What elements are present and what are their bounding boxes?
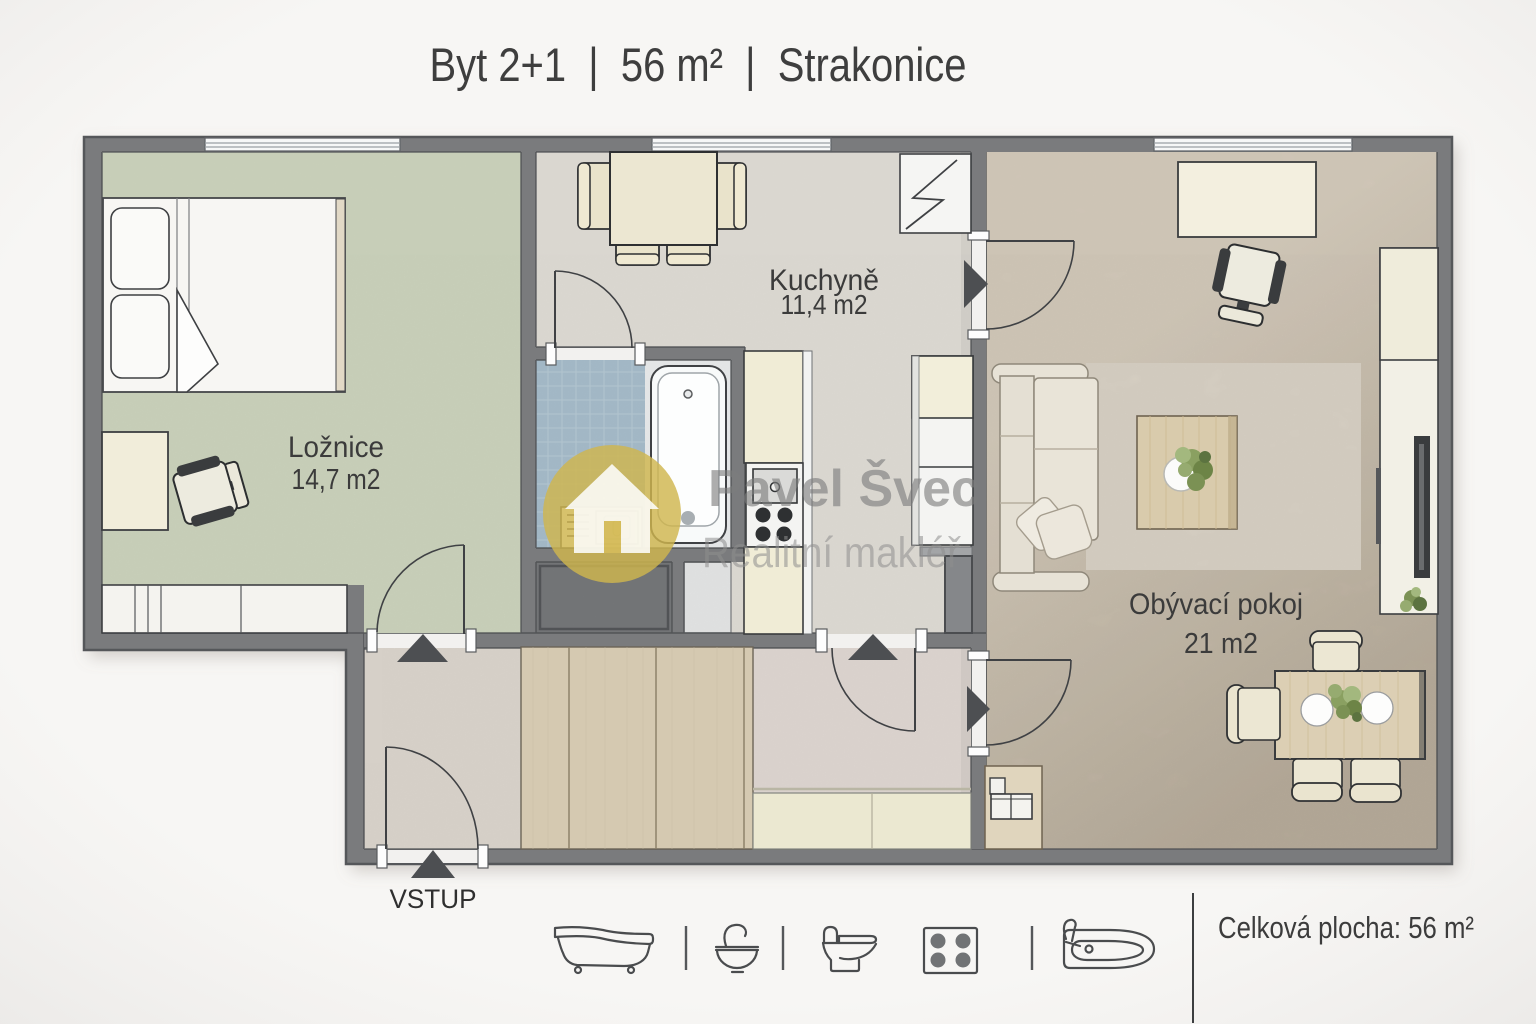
svg-text:11,4 m2: 11,4 m2 bbox=[781, 289, 868, 320]
svg-text:14,7 m2: 14,7 m2 bbox=[292, 464, 381, 496]
svg-text:Obývací pokoj: Obývací pokoj bbox=[1129, 588, 1303, 621]
svg-text:Realitní makléř: Realitní makléř bbox=[702, 529, 962, 577]
svg-text:21 m2: 21 m2 bbox=[1184, 628, 1258, 660]
svg-text:VSTUP: VSTUP bbox=[390, 884, 477, 914]
svg-text:Celková plocha: 56 m²: Celková plocha: 56 m² bbox=[1218, 910, 1474, 945]
svg-text:Byt 2+1 | 56 m² | Strakoni: Byt 2+1 | 56 m² | Strakonice bbox=[430, 38, 967, 91]
svg-text:Pavel Švec: Pavel Švec bbox=[708, 459, 980, 518]
svg-text:Ložnice: Ložnice bbox=[288, 431, 384, 464]
